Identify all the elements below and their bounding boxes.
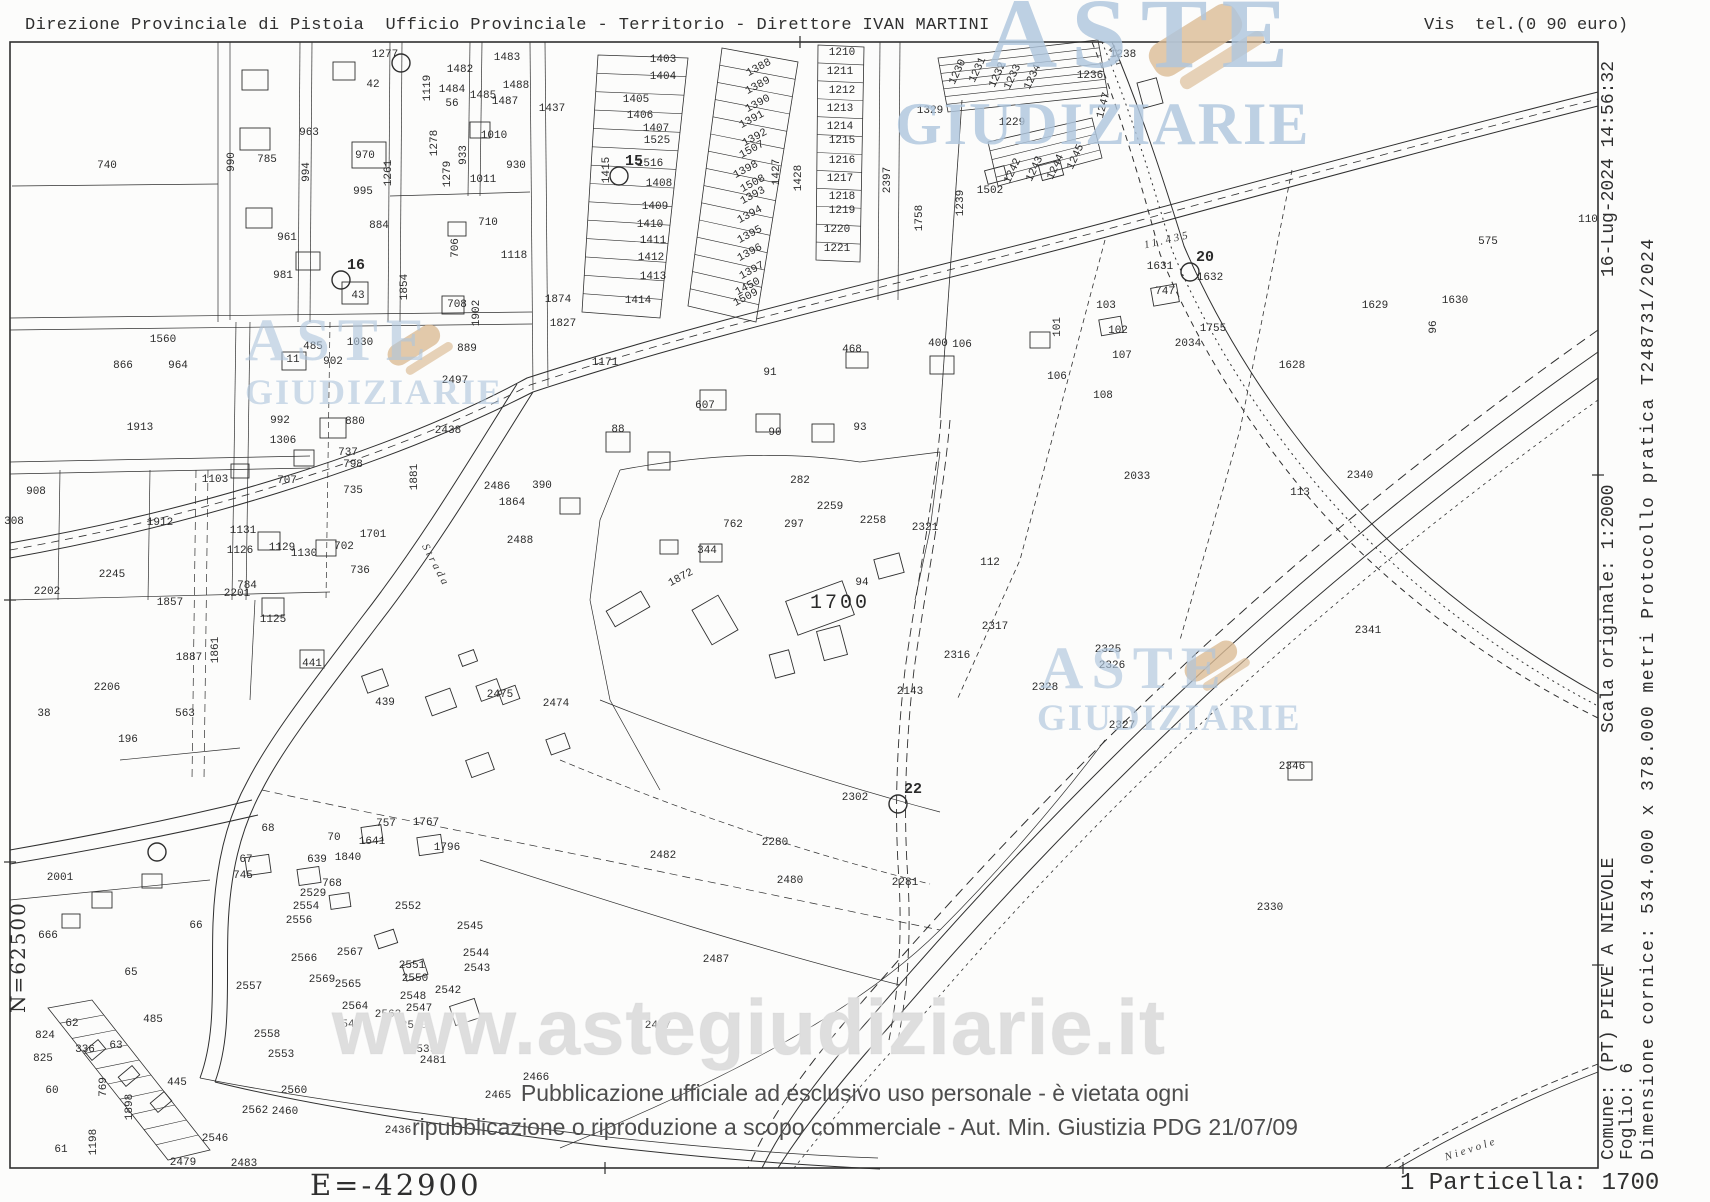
parcel-label: 1216: [829, 155, 855, 167]
parcel-label: 1239: [955, 190, 967, 216]
road-line: [940, 740, 1105, 930]
parcel-label: 1277: [372, 49, 398, 61]
parcel-label: 1912: [147, 517, 173, 529]
parcel-label: 1221: [824, 243, 851, 255]
parcel-label: 336: [75, 1044, 95, 1056]
building-footprint: [466, 752, 495, 777]
parcel-label: 710: [478, 217, 498, 229]
road-line: [898, 42, 900, 300]
parcel-label: 62: [65, 1018, 78, 1030]
parcel-label: 735: [343, 485, 363, 497]
parcel-label: 1408: [646, 178, 672, 190]
building-footprint: [812, 424, 834, 442]
parcel-label: 575: [1478, 236, 1498, 248]
parcel-label: 2340: [1347, 470, 1373, 482]
parcel-label: 1131: [230, 525, 257, 537]
building-footprint: [458, 650, 477, 667]
parcel-label: 1437: [539, 103, 565, 115]
road-line: [560, 760, 930, 884]
road-line: [957, 240, 1105, 700]
parcel-label: 1487: [492, 96, 518, 108]
road-line: [545, 42, 548, 386]
north-coordinate-label: N=62500: [6, 901, 30, 1013]
parcel-label: 102: [1108, 325, 1128, 337]
parcel-label: 1403: [650, 54, 676, 66]
road-line: [480, 42, 482, 196]
road-line: [204, 470, 208, 780]
parcel-label: 1412: [638, 252, 664, 264]
parcel-label: 702: [334, 541, 354, 553]
boundary-point-label: 15: [625, 153, 643, 170]
road-line: [480, 860, 900, 985]
parcel-label: 1700: [810, 592, 870, 615]
parcel-label: 666: [38, 930, 58, 942]
parcel-label: 2552: [395, 901, 421, 913]
parcel-label: 2143: [897, 686, 923, 698]
road-label: Strada: [419, 542, 452, 589]
road-line: [10, 468, 310, 474]
parcel-label: 282: [790, 475, 810, 487]
aste-logo-right-sub: GIUDIZIARIE: [1037, 700, 1302, 737]
boundary-point-label: 16: [347, 257, 365, 274]
parcel-label: 101: [1052, 317, 1064, 337]
parcel-label: 2554: [293, 901, 320, 913]
boundary-point-icon: [392, 54, 410, 72]
parcel-label: 1410: [637, 219, 663, 231]
aste-logo-top-sub: GIUDIZIARIE: [895, 94, 1310, 154]
parcel-label: 708: [447, 299, 467, 311]
parcel-label: 96: [1428, 320, 1440, 333]
parcel-label: 2474: [543, 698, 570, 710]
parcel-label: 1278: [429, 130, 441, 156]
parcel-label: 61: [54, 1144, 68, 1156]
timestamp-label: 16-Lug-2024 14:56:32: [1600, 61, 1619, 277]
building-footprint: [648, 452, 670, 470]
parcel-label: 2544: [463, 948, 490, 960]
parcel-label: 1394: [736, 204, 765, 227]
parcel-label: 1404: [650, 71, 677, 83]
road-line: [262, 790, 940, 930]
building-footprint: [296, 252, 320, 270]
parcel-label: 970: [355, 150, 375, 162]
disclaimer-line1: Pubblicazione ufficiale ad esclusivo uso…: [0, 1080, 1710, 1107]
parcel-label: 889: [457, 343, 477, 355]
parcel-label: 1217: [827, 173, 853, 185]
parcel-label: 1118: [501, 250, 527, 262]
parcel-label: 2567: [337, 947, 363, 959]
parcel-label: 1840: [335, 852, 361, 864]
parcel-label: 798: [343, 459, 363, 471]
parcel-label: 866: [113, 360, 133, 372]
parcel-label: 994: [301, 162, 313, 182]
parcel-label: 2479: [170, 1157, 196, 1169]
parcel-label: 1483: [494, 52, 520, 64]
building-footprint: [374, 929, 397, 948]
parcel-label: 1261: [383, 159, 395, 186]
parcel-label: 2487: [703, 954, 729, 966]
parcel-label: 308: [4, 516, 24, 528]
parcel-label: 297: [784, 519, 804, 531]
aste-logo-left: ASTE: [245, 310, 434, 370]
building-footprint: [930, 356, 954, 374]
strip-division: [818, 81, 864, 83]
building-footprint: [606, 591, 650, 627]
parcel-label: 2034: [1175, 338, 1202, 350]
building-footprint: [294, 450, 314, 466]
parcel-label: 1827: [550, 318, 576, 330]
road-line: [298, 42, 300, 322]
parcel-label: 1484: [439, 84, 466, 96]
parcel-label: 2553: [268, 1049, 294, 1061]
parcel-label: 56: [445, 98, 458, 110]
parcel-label: 762: [723, 519, 743, 531]
parcel-label: 2280: [762, 837, 788, 849]
parcel-label: 747: [1155, 286, 1175, 298]
building-footprint: [297, 867, 321, 886]
parcel-label: 880: [345, 416, 365, 428]
strip-division: [818, 63, 864, 65]
parcel-label: 38: [37, 708, 50, 720]
parcel-label: 933: [458, 145, 470, 165]
parcel-label: 961: [277, 232, 297, 244]
parcel-label: 42: [366, 79, 379, 91]
parcel-label: 1902: [471, 300, 483, 326]
parcel-label: 65: [124, 967, 137, 979]
parcel-label: 963: [299, 127, 319, 139]
parcel-label: 995: [353, 186, 373, 198]
parcel-label: 1488: [503, 80, 529, 92]
building-footprint: [660, 540, 678, 554]
parcel-label: 2321: [912, 522, 939, 534]
parcel-label: 88: [611, 424, 624, 436]
boundary-point-label: 22: [904, 781, 922, 798]
parcel-label: 400: [928, 338, 948, 350]
parcel-label: 981: [273, 270, 293, 282]
building-footprint: [560, 498, 580, 514]
road-line: [390, 192, 530, 196]
parcel-label: 2482: [650, 850, 676, 862]
parcel-label: 2545: [457, 921, 483, 933]
building-footprint: [874, 553, 904, 579]
parcel-label: 1414: [625, 295, 652, 307]
parcel-label: 1413: [640, 271, 666, 283]
parcel-label: 2475: [487, 689, 513, 701]
road-line: [1180, 170, 1292, 640]
parcel-label: 1758: [914, 205, 926, 231]
parcel-label: 1630: [1442, 295, 1468, 307]
parcel-label: 66: [189, 920, 202, 932]
parcel-label: 908: [26, 486, 46, 498]
parcel-label: 1213: [827, 103, 853, 115]
parcel-label: 1279: [442, 161, 454, 187]
parcel-label: 1874: [545, 294, 572, 306]
parcel-label: 1409: [642, 201, 668, 213]
cadastral-map-page: { "header": { "left": "Direzione Provinc…: [0, 0, 1710, 1200]
parcel-label: 2438: [435, 425, 461, 437]
parcel-label: 2566: [291, 953, 317, 965]
parcel-label: 113: [1290, 487, 1310, 499]
parcel-label: 824: [35, 1030, 55, 1042]
boundary-point-icon: [148, 843, 166, 861]
parcel-label: 639: [307, 854, 327, 866]
parcel-label: 1103: [202, 474, 228, 486]
parcel-label: 736: [350, 565, 370, 577]
building-footprint: [92, 892, 112, 908]
parcel-label: 737: [338, 447, 358, 459]
parcel-label: 757: [376, 818, 396, 830]
parcel-label: 1126: [227, 545, 253, 557]
parcel-label: 2529: [300, 888, 326, 900]
road-line: [600, 700, 940, 812]
parcel-label: 1502: [977, 185, 1003, 197]
building-footprint: [329, 893, 351, 910]
parcel-label: 43: [351, 290, 364, 302]
parcel-label: 1796: [434, 842, 460, 854]
parcel-label: 1854: [399, 273, 411, 300]
parcel-label: 441: [302, 658, 322, 670]
building-footprint: [1030, 332, 1050, 348]
road-line: [10, 456, 310, 462]
strip-division: [72, 1030, 116, 1038]
parcel-label: 2558: [254, 1029, 280, 1041]
road-line: [232, 322, 236, 600]
road-line: [148, 470, 150, 600]
parcel-label: 93: [853, 422, 866, 434]
dimensione-protocollo-label: Dimensione cornice: 534.000 x 378.000 me…: [1640, 237, 1659, 1160]
building-footprint: [692, 595, 738, 645]
parcel-label: 2317: [982, 621, 1008, 633]
parcel-label: 1631: [1147, 261, 1174, 273]
parcel-label: 94: [855, 577, 869, 589]
parcel-label: 1641: [359, 836, 386, 848]
parcel-label: 2330: [1257, 902, 1283, 914]
parcel-label: 2302: [842, 792, 868, 804]
parcel-label: 1632: [1197, 272, 1223, 284]
parcel-label: 964: [168, 360, 188, 372]
building-footprint: [362, 669, 389, 693]
parcel-label: 1219: [829, 205, 855, 217]
road-line: [620, 452, 940, 470]
road-line: [250, 600, 255, 700]
building-footprint: [425, 688, 456, 716]
parcel-label: 2202: [34, 586, 60, 598]
road-line: [590, 470, 660, 790]
parcel-label: 1214: [827, 121, 854, 133]
road-line: [530, 42, 533, 390]
parcel-label: 992: [270, 415, 290, 427]
road-line: [878, 42, 880, 300]
building-footprint: [62, 914, 80, 928]
parcel-label: 90: [768, 427, 781, 439]
road-line: [215, 392, 533, 1082]
parcel-label: 107: [1112, 350, 1132, 362]
east-coordinate-label: E=-42900: [310, 1168, 482, 1202]
website-watermark: www.astegiudiziarie.it: [332, 982, 1166, 1073]
particella-label: 1 Particella: 1700: [1400, 1170, 1659, 1197]
parcel-label: 2033: [1124, 471, 1150, 483]
parcel-label: 1389: [744, 75, 773, 98]
building-footprint: [769, 650, 795, 678]
parcel-label: 2346: [1279, 761, 1305, 773]
parcel-label: 106: [952, 339, 972, 351]
parcel-label: 468: [842, 344, 862, 356]
parcel-label: 67: [239, 854, 252, 866]
building-footprint: [546, 733, 570, 755]
parcel-label: 825: [33, 1053, 53, 1065]
aste-logo-word: ASTE: [985, 0, 1302, 89]
parcel-label: 2397: [882, 167, 894, 193]
road-line: [10, 880, 210, 900]
aste-logo-top: ASTE: [985, 0, 1302, 84]
parcel-label: 2483: [231, 1158, 257, 1170]
road-line: [120, 748, 240, 760]
parcel-label: 707: [277, 475, 297, 487]
parcel-label: 884: [369, 220, 389, 232]
building-footprint: [242, 70, 268, 90]
parcel-label: 1406: [627, 110, 653, 122]
parcel-label: 1130: [291, 548, 317, 560]
parcel-label: 70: [327, 832, 340, 844]
parcel-label: 1887: [176, 652, 202, 664]
parcel-label: 2201: [224, 588, 251, 600]
parcel-label: 2259: [817, 501, 843, 513]
parcel-label: 1701: [360, 529, 387, 541]
parcel-label: 990: [226, 152, 238, 172]
parcel-label: 2001: [47, 872, 74, 884]
road-line: [192, 470, 196, 780]
parcel-label: 1864: [499, 497, 526, 509]
strip-division: [592, 147, 678, 151]
boundary-point-label: 20: [1196, 249, 1214, 266]
parcel-label: 1211: [827, 66, 854, 78]
parcel-label: 2543: [464, 963, 490, 975]
parcel-label: 68: [261, 823, 274, 835]
strip-division: [818, 99, 864, 101]
parcel-label: 2551: [399, 960, 426, 972]
parcel-label: 1220: [824, 224, 850, 236]
parcel-label: 1428: [793, 165, 805, 191]
parcel-label: 1215: [829, 135, 855, 147]
parcel-label: 108: [1093, 390, 1113, 402]
parcel-label: 1913: [127, 422, 153, 434]
parcel-label: 439: [375, 697, 395, 709]
parcel-label: 563: [175, 708, 195, 720]
parcel-label: 1218: [829, 191, 855, 203]
building-footprint: [817, 625, 848, 660]
parcel-label: 1010: [481, 130, 507, 142]
parcel-label: 1171: [592, 357, 619, 369]
aste-logo-right: ASTE: [1040, 638, 1229, 698]
parcel-label: 1405: [623, 94, 649, 106]
road-line: [898, 420, 950, 1040]
parcel-label: 106: [1047, 371, 1067, 383]
parcel-label: 2258: [860, 515, 886, 527]
parcel-label: 91: [763, 367, 777, 379]
parcel-label: 1212: [829, 85, 855, 97]
parcel-label: 344: [697, 545, 717, 557]
parcel-label: 1407: [643, 123, 669, 135]
parcel-label: 2341: [1355, 625, 1382, 637]
parcel-label: 2281: [892, 877, 919, 889]
aste-logo-left-sub: GIUDIZIARIE: [245, 374, 503, 410]
building-footprint: [448, 222, 466, 236]
parcel-label: 2245: [99, 569, 125, 581]
parcel-label: 1125: [260, 614, 286, 626]
parcel-label: 706: [450, 238, 462, 258]
parcel-label: 1525: [644, 135, 670, 147]
parcel-label: 110: [1578, 214, 1598, 226]
parcel-label: 2557: [236, 981, 262, 993]
header-title: Direzione Provinciale di Pistoia Ufficio…: [25, 16, 990, 35]
parcel-label: 1767: [413, 817, 439, 829]
parcel-label: 1388: [745, 57, 774, 80]
parcel-label: 2556: [286, 915, 312, 927]
road-line: [58, 470, 60, 600]
parcel-label: 390: [532, 480, 552, 492]
parcel-label: 2316: [944, 650, 970, 662]
parcel-label: 1755: [1200, 323, 1226, 335]
building-footprint: [320, 418, 346, 438]
parcel-label: 103: [1096, 300, 1116, 312]
parcel-label: 1411: [640, 235, 667, 247]
parcel-label: 1857: [157, 597, 183, 609]
parcel-label: 785: [257, 154, 277, 166]
parcel-label: 63: [109, 1040, 122, 1052]
strip-division: [817, 117, 862, 119]
parcel-label: 1872: [667, 567, 696, 590]
building-footprint: [240, 128, 270, 150]
parcel-label: 1861: [210, 636, 222, 663]
building-footprint: [246, 208, 272, 228]
building-footprint: [316, 540, 336, 556]
parcel-label: 1881: [409, 463, 421, 490]
road-line: [12, 184, 218, 186]
parcel-label: 1306: [270, 435, 296, 447]
parcel-label: 1011: [470, 174, 497, 186]
parcel-label: 1629: [1362, 300, 1388, 312]
parcel-label: 1427: [771, 159, 783, 185]
parcel-label: 1210: [829, 47, 855, 59]
building-footprint: [333, 62, 355, 80]
parcel-label: 1628: [1279, 360, 1305, 372]
parcel-label: 1482: [447, 64, 473, 76]
parcel-label: 1395: [736, 224, 765, 247]
parcel-label: 1560: [150, 334, 176, 346]
parcel-label: 1119: [422, 75, 434, 101]
parcel-label: 485: [143, 1014, 163, 1026]
parcel-label: 2488: [507, 535, 533, 547]
parcel-label: 112: [980, 557, 1000, 569]
scala-label: Scala originale: 1:2000: [1600, 485, 1619, 733]
parcel-label: 930: [506, 160, 526, 172]
parcel-label: 196: [118, 734, 138, 746]
parcel-label: 2486: [484, 481, 510, 493]
strip-division: [96, 1060, 139, 1069]
parcel-label: 607: [695, 400, 715, 412]
parcel-label: 745: [233, 870, 253, 882]
parcel-label: 740: [97, 160, 117, 172]
comune-foglio-label: Comune: (PT) PIEVE A NIEVOLEFoglio: 6: [1600, 858, 1638, 1160]
parcel-label: 2206: [94, 682, 120, 694]
header-phone-note: Vis tel.(0 90 euro): [1424, 16, 1628, 35]
parcel-label: 2480: [777, 875, 803, 887]
disclaimer-line2: ripubblicazione o riproduzione a scopo c…: [0, 1114, 1710, 1141]
